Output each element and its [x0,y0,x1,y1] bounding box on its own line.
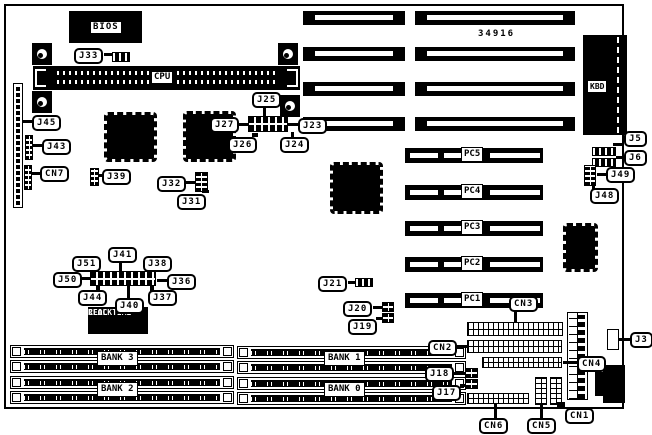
isa-slot-contact-stripe [315,86,393,91]
callout-pointer [376,317,383,320]
cpu-slot-end [287,69,298,87]
callout-pointer [104,53,113,56]
pci-slot-segment [410,190,438,195]
callout-j36: J36 [167,274,196,290]
callout-pointer [373,306,382,309]
pin-block [382,302,394,312]
rear-port-connector [595,372,605,396]
edge-pin-strip [13,83,23,208]
pin-block [24,165,32,190]
simm-clip [223,362,232,371]
bios-label: BIOS [90,21,122,34]
pci-slot-label: PC5 [461,147,483,162]
callout-cn2: CN2 [428,340,457,356]
callout-j18: J18 [425,366,454,382]
callout-pointer [157,279,167,282]
pin-block [465,368,478,378]
callout-pointer [202,190,209,193]
callout-j26: J26 [228,137,257,153]
pci-slot-segment [410,226,438,231]
pin-strip [592,147,616,156]
rtc-label-line2: CLOCK [88,307,112,319]
callout-pointer [127,284,130,298]
simm-clip [12,362,21,371]
isa-slot [303,47,405,61]
callout-j5: J5 [624,131,647,147]
cpu-mount-bracket [32,91,52,113]
pin-header [467,393,529,404]
callout-pointer [557,402,565,408]
callout-pointer [348,281,356,284]
cpu-mount-bracket [280,95,300,117]
pci-slot: PC4 [405,185,543,200]
callout-j48: J48 [590,188,619,204]
pin-header-vertical [550,377,562,405]
pin-block [465,379,478,389]
simm-clip [12,347,21,356]
cpu-slot-end [35,69,46,87]
bank-label: BANK 3 [97,351,138,366]
simm-clip [455,363,464,372]
pin-header-vertical [535,377,547,405]
pci-slot-segment [490,190,540,195]
isa-slot-contact-stripe [427,15,563,20]
pci-slot: PC2 [405,257,543,272]
callout-pointer [597,173,606,176]
callout-pointer [460,384,466,387]
callout-pointer [494,404,497,418]
callout-j24: J24 [280,137,309,153]
callout-j44: J44 [78,290,107,306]
callout-pointer [540,404,543,418]
callout-j6: J6 [624,150,647,166]
callout-pointer [22,120,32,123]
pin-header [467,322,563,336]
callout-j37: J37 [148,290,177,306]
isa-slot-contact-stripe [427,51,563,56]
callout-j31: J31 [177,194,206,210]
pin-header [467,340,562,353]
mount-hole-icon [37,97,47,107]
bank-label: BANK 2 [97,382,138,397]
pci-slot-segment [410,262,438,267]
callout-j43: J43 [42,139,71,155]
simm-clip [223,378,232,387]
simm-clip [12,378,21,387]
callout-j17: J17 [432,385,461,401]
bank-label: BANK 0 [324,382,365,397]
pci-slot-label: PC3 [461,220,483,235]
callout-cn7: CN7 [40,166,69,182]
pin-header [482,357,562,368]
isa-slot [415,82,575,96]
callout-j33: J33 [74,48,103,64]
qfp-chip [563,223,598,272]
callout-pointer [457,345,467,348]
motherboard-diagram: BIOS CPU KBD 34916 REAL TIME CLOCK PC5PC… [0,0,652,435]
pin-block [195,172,208,192]
bank-label: BANK 1 [324,351,365,366]
callout-j39: J39 [102,169,131,185]
pin-strip [355,278,373,287]
pci-slot-label: PC4 [461,184,483,199]
qfp-chip [330,162,383,214]
pci-slot-segment [410,298,438,303]
callout-j32: J32 [157,176,186,192]
cpu-label: CPU [151,71,173,84]
callout-j20: J20 [343,301,372,317]
jumper-block-row [248,116,288,132]
callout-pointer [616,156,624,159]
isa-slot [415,11,575,25]
mount-hole-icon [37,49,47,59]
isa-slot-contact-stripe [315,15,393,20]
callout-j41: J41 [108,247,137,263]
pci-slot-segment [490,226,540,231]
pci-slot-label: PC2 [461,256,483,271]
cpu-mount-bracket [278,43,298,65]
simm-clip [12,393,21,402]
callout-pointer [563,361,577,364]
simm-clip [239,363,248,372]
isa-slot [415,117,575,131]
connector-outline [607,329,619,350]
isa-slot-contact-stripe [315,51,393,56]
callout-pointer [514,311,517,322]
callout-j40: J40 [115,298,144,314]
callout-pointer [619,338,630,341]
simm-clip [239,379,248,388]
callout-j27: J27 [210,117,239,133]
callout-cn4: CN4 [577,356,606,372]
pin-block [25,135,33,160]
simm-clip [239,348,248,357]
callout-j51: J51 [72,256,101,272]
mount-hole-icon [283,49,293,59]
pci-slot: PC5 [405,148,543,163]
callout-pointer [238,123,248,126]
pci-slot-segment [410,153,438,158]
simm-clip [223,393,232,402]
mount-hole-icon [285,101,295,111]
callout-j50: J50 [53,272,82,288]
isa-slot [415,47,575,61]
callout-pointer [33,144,42,147]
pci-slot-segment [490,153,540,158]
callout-cn5: CN5 [527,418,556,434]
qfp-chip [104,112,157,162]
rear-port-connector [603,365,625,403]
callout-pointer [288,123,298,126]
callout-j38: J38 [143,256,172,272]
callout-j3: J3 [630,332,652,348]
pci-slot: PC3 [405,221,543,236]
callout-j21: J21 [318,276,347,292]
callout-j25: J25 [252,92,281,108]
simm-clip [239,394,248,403]
callout-cn1: CN1 [565,408,594,424]
callout-pointer [32,172,40,175]
isa-slot [303,82,405,96]
callout-j19: J19 [348,319,377,335]
board-number: 34916 [478,29,515,39]
pci-slot-label: PC1 [461,292,483,307]
simm-clip [223,347,232,356]
jumper-block-row [90,271,156,286]
isa-slot-contact-stripe [427,86,563,91]
callout-j23: J23 [298,118,327,134]
pin-strip [112,52,130,62]
pin-block [382,313,394,323]
cpu-mount-bracket [32,43,52,65]
pci-slot-segment [490,262,540,267]
isa-slot [303,11,405,25]
callout-j49: J49 [606,167,635,183]
callout-cn3: CN3 [509,296,538,312]
callout-pointer [613,143,624,146]
isa-slot-contact-stripe [427,121,563,126]
pin-block [90,168,99,186]
callout-j45: J45 [32,115,61,131]
kbd-label: KBD [587,80,607,93]
callout-cn6: CN6 [479,418,508,434]
